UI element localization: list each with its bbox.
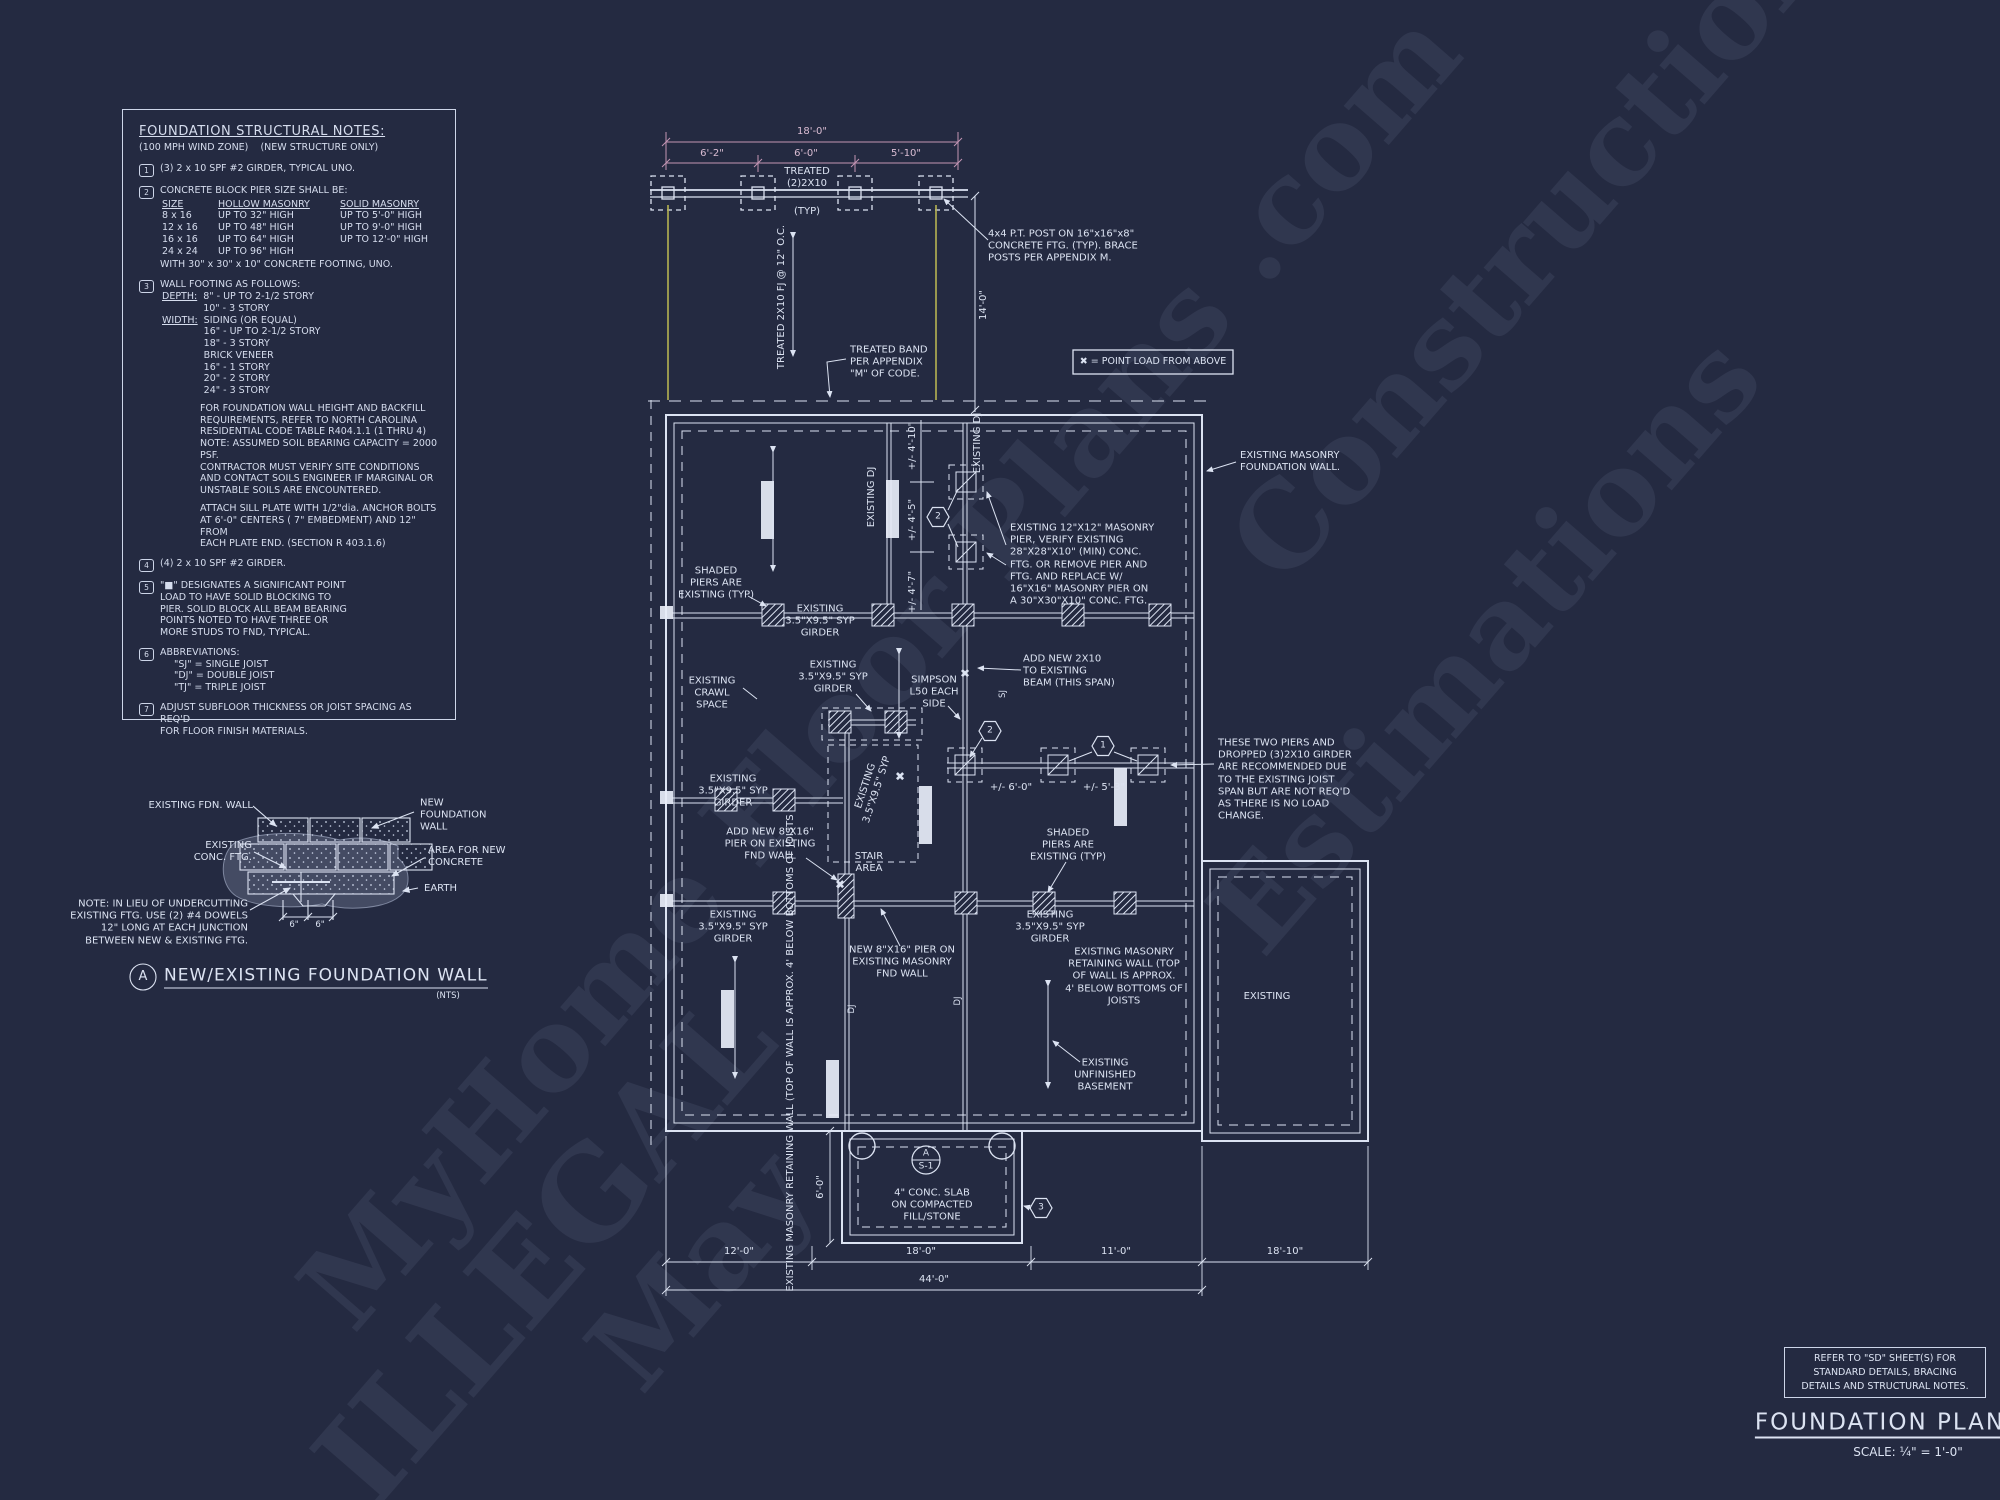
note-number-badge: 7 — [139, 703, 154, 716]
label-shaded-piers-left: SHADED PIERS ARE EXISTING (TYP) — [678, 566, 754, 603]
label-treated-band-note: TREATED BAND PER APPENDIX "M" OF CODE. — [850, 345, 928, 382]
blueprint-sheet: MyHome Floor Plans .com Construction Est… — [0, 0, 2000, 1500]
label-existing-masonry-foundation-wall: EXISTING MASONRY FOUNDATION WALL. — [1240, 450, 1340, 474]
label-dj: DJ — [847, 1004, 857, 1013]
detail-callout-letter: A — [139, 969, 148, 985]
detail-label-existing-fdn-wall: EXISTING FDN. WALL — [148, 800, 253, 812]
label-stair-area: STAIR AREA — [855, 851, 883, 875]
section-callout-letter: A — [923, 1149, 929, 1160]
label-new-8x16-pier: NEW 8"X16" PIER ON EXISTING MASONRY FND … — [849, 945, 955, 982]
detail-label-existing-conc-ftg: EXISTING CONC. FTG. — [194, 840, 252, 864]
section-callout-sheet: S-1 — [919, 1162, 934, 1173]
note-number-badge: 4 — [139, 559, 154, 572]
dim-bottom-3: 11'-0" — [1101, 1246, 1131, 1258]
detail-label-new-foundation-wall: NEW FOUNDATION WALL — [420, 798, 486, 835]
detail-dim-6in: 6" — [315, 920, 324, 930]
sheet-scale: SCALE: ¼" = 1'-0" — [1853, 1445, 1963, 1459]
label-existing-girder: EXISTING 3.5"X9.5" SYP GIRDER — [698, 774, 768, 811]
dim-mid2: +/- 5'-3" — [1083, 782, 1125, 794]
label-retaining-wall-rotated: EXISTING MASONRY RETAINING WALL (TOP OF … — [785, 814, 797, 1291]
note-1: 1 (3) 2 x 10 SPF #2 GIRDER, TYPICAL UNO. — [139, 163, 439, 177]
label-these-two-piers-note: THESE TWO PIERS AND DROPPED (3)2X10 GIRD… — [1218, 737, 1352, 822]
note-number-badge: 1 — [139, 164, 154, 177]
detail-dim-6in: 6" — [289, 920, 298, 930]
note-number-badge: 6 — [139, 648, 154, 661]
label-existing-dj: EXISTING DJ — [972, 413, 984, 474]
point-load-marker: ✖ — [835, 878, 845, 893]
detail-label-earth: EARTH — [424, 883, 457, 895]
label-retaining-wall: EXISTING MASONRY RETAINING WALL (TOP OF … — [1065, 947, 1183, 1008]
dim-slab-vertical: 6'-0" — [815, 1175, 827, 1199]
label-treated-fj: TREATED 2X10 FJ @ 12" O.C. — [776, 225, 788, 369]
detail-scale: (NTS) — [436, 991, 460, 1001]
dim-top-total: 18'-0" — [797, 126, 827, 138]
notes-title: FOUNDATION STRUCTURAL NOTES: — [139, 124, 439, 140]
dim-bottom-1: 12'-0" — [724, 1246, 754, 1258]
legend-point-load: ✖ = POINT LOAD FROM ABOVE — [1080, 356, 1226, 368]
label-dj: DJ — [953, 996, 963, 1005]
dim-top-seg3: 5'-10" — [891, 148, 921, 160]
dim-bottom-2: 18'-0" — [906, 1246, 936, 1258]
label-existing-dj: EXISTING DJ — [866, 467, 878, 528]
callout-2: 2 — [935, 512, 941, 523]
label-existing-girder: EXISTING 3.5"X9.5" SYP GIRDER — [698, 910, 768, 947]
label-treated-beam: TREATED (2)2X10 — [784, 166, 830, 190]
detail-note-dowels: NOTE: IN LIEU OF UNDERCUTTING EXISTING F… — [70, 899, 248, 948]
sheet-title: FOUNDATION PLAN — [1755, 1410, 2000, 1439]
note-7: 7 ADJUST SUBFLOOR THICKNESS OR JOIST SPA… — [139, 702, 439, 737]
label-add-new-2x10: ADD NEW 2X10 TO EXISTING BEAM (THIS SPAN… — [1023, 654, 1115, 691]
dim-v2: +/- 4'-5" — [907, 499, 919, 541]
note-4: 4 (4) 2 x 10 SPF #2 GIRDER. — [139, 558, 439, 572]
label-existing-crawl-space: EXISTING CRAWL SPACE — [689, 676, 736, 713]
dim-bottom-total: 44'-0" — [919, 1274, 949, 1286]
reference-note-box: REFER TO "SD" SHEET(S) FOR STANDARD DETA… — [1784, 1347, 1986, 1398]
label-post-note: 4x4 P.T. POST ON 16"x16"x8" CONCRETE FTG… — [988, 229, 1138, 266]
label-simpson-l50: SIMPSON L50 EACH SIDE — [910, 675, 959, 712]
notes-subtitle: (100 MPH WIND ZONE) (NEW STRUCTURE ONLY) — [139, 142, 439, 154]
note-number-badge: 3 — [139, 280, 154, 293]
label-add-new-pier: ADD NEW 8"X16" PIER ON EXISTING FND WALL — [725, 827, 816, 864]
pier-size-table: SIZEHOLLOW MASONRYSOLID MASONRY 8 x 16UP… — [162, 199, 458, 258]
label-existing-unfinished-basement: EXISTING UNFINISHED BASEMENT — [1074, 1058, 1136, 1095]
label-conc-slab: 4" CONC. SLAB ON COMPACTED FILL/STONE — [891, 1188, 972, 1225]
note-number-badge: 5 — [139, 581, 154, 594]
dim-top-seg1: 6'-2" — [700, 148, 724, 160]
point-load-marker: ✖ — [960, 667, 970, 682]
dim-mid1: +/- 6'-0" — [990, 782, 1032, 794]
note-number-badge: 2 — [139, 186, 154, 199]
dim-bottom-right: 18'-10" — [1267, 1246, 1303, 1258]
note-6: 6 ABBREVIATIONS: "SJ" = SINGLE JOIST "DJ… — [139, 647, 439, 694]
label-treated-beam-typ: (TYP) — [794, 206, 820, 218]
label-existing-girder: EXISTING 3.5"X9.5" SYP GIRDER — [785, 604, 855, 641]
note-5: 5 "■" DESIGNATES A SIGNIFICANT POINT LOA… — [139, 580, 439, 639]
label-existing-girder: EXISTING 3.5"X9.5" SYP GIRDER — [1015, 910, 1085, 947]
note-2: 2 CONCRETE BLOCK PIER SIZE SHALL BE: SIZ… — [139, 185, 439, 271]
label-existing-girder: EXISTING 3.5"X9.5" SYP GIRDER — [798, 660, 868, 697]
note-3: 3 WALL FOOTING AS FOLLOWS: DEPTH:8" - UP… — [139, 279, 439, 550]
callout-2: 2 — [987, 726, 993, 737]
dim-v1: +/- 4'-10" — [907, 422, 919, 471]
dim-v3: +/- 4'-7" — [907, 571, 919, 613]
point-load-marker: ✖ — [895, 770, 905, 785]
callout-1: 1 — [1100, 741, 1106, 752]
foundation-structural-notes-panel: FOUNDATION STRUCTURAL NOTES: (100 MPH WI… — [122, 109, 456, 720]
label-masonry-pier-note: EXISTING 12"X12" MASONRY PIER, VERIFY EX… — [1010, 522, 1154, 607]
label-existing-right-section: EXISTING — [1244, 991, 1291, 1003]
dim-right-vertical: 14'-0" — [978, 290, 990, 320]
dim-top-seg2: 6'-0" — [794, 148, 818, 160]
detail-label-area-for-new-concrete: AREA FOR NEW CONCRETE — [428, 845, 506, 869]
detail-title: NEW/EXISTING FOUNDATION WALL — [164, 966, 488, 989]
label-shaded-piers-right: SHADED PIERS ARE EXISTING (TYP) — [1030, 828, 1106, 865]
label-sj: SJ — [998, 690, 1008, 698]
callout-3: 3 — [1038, 1203, 1044, 1214]
